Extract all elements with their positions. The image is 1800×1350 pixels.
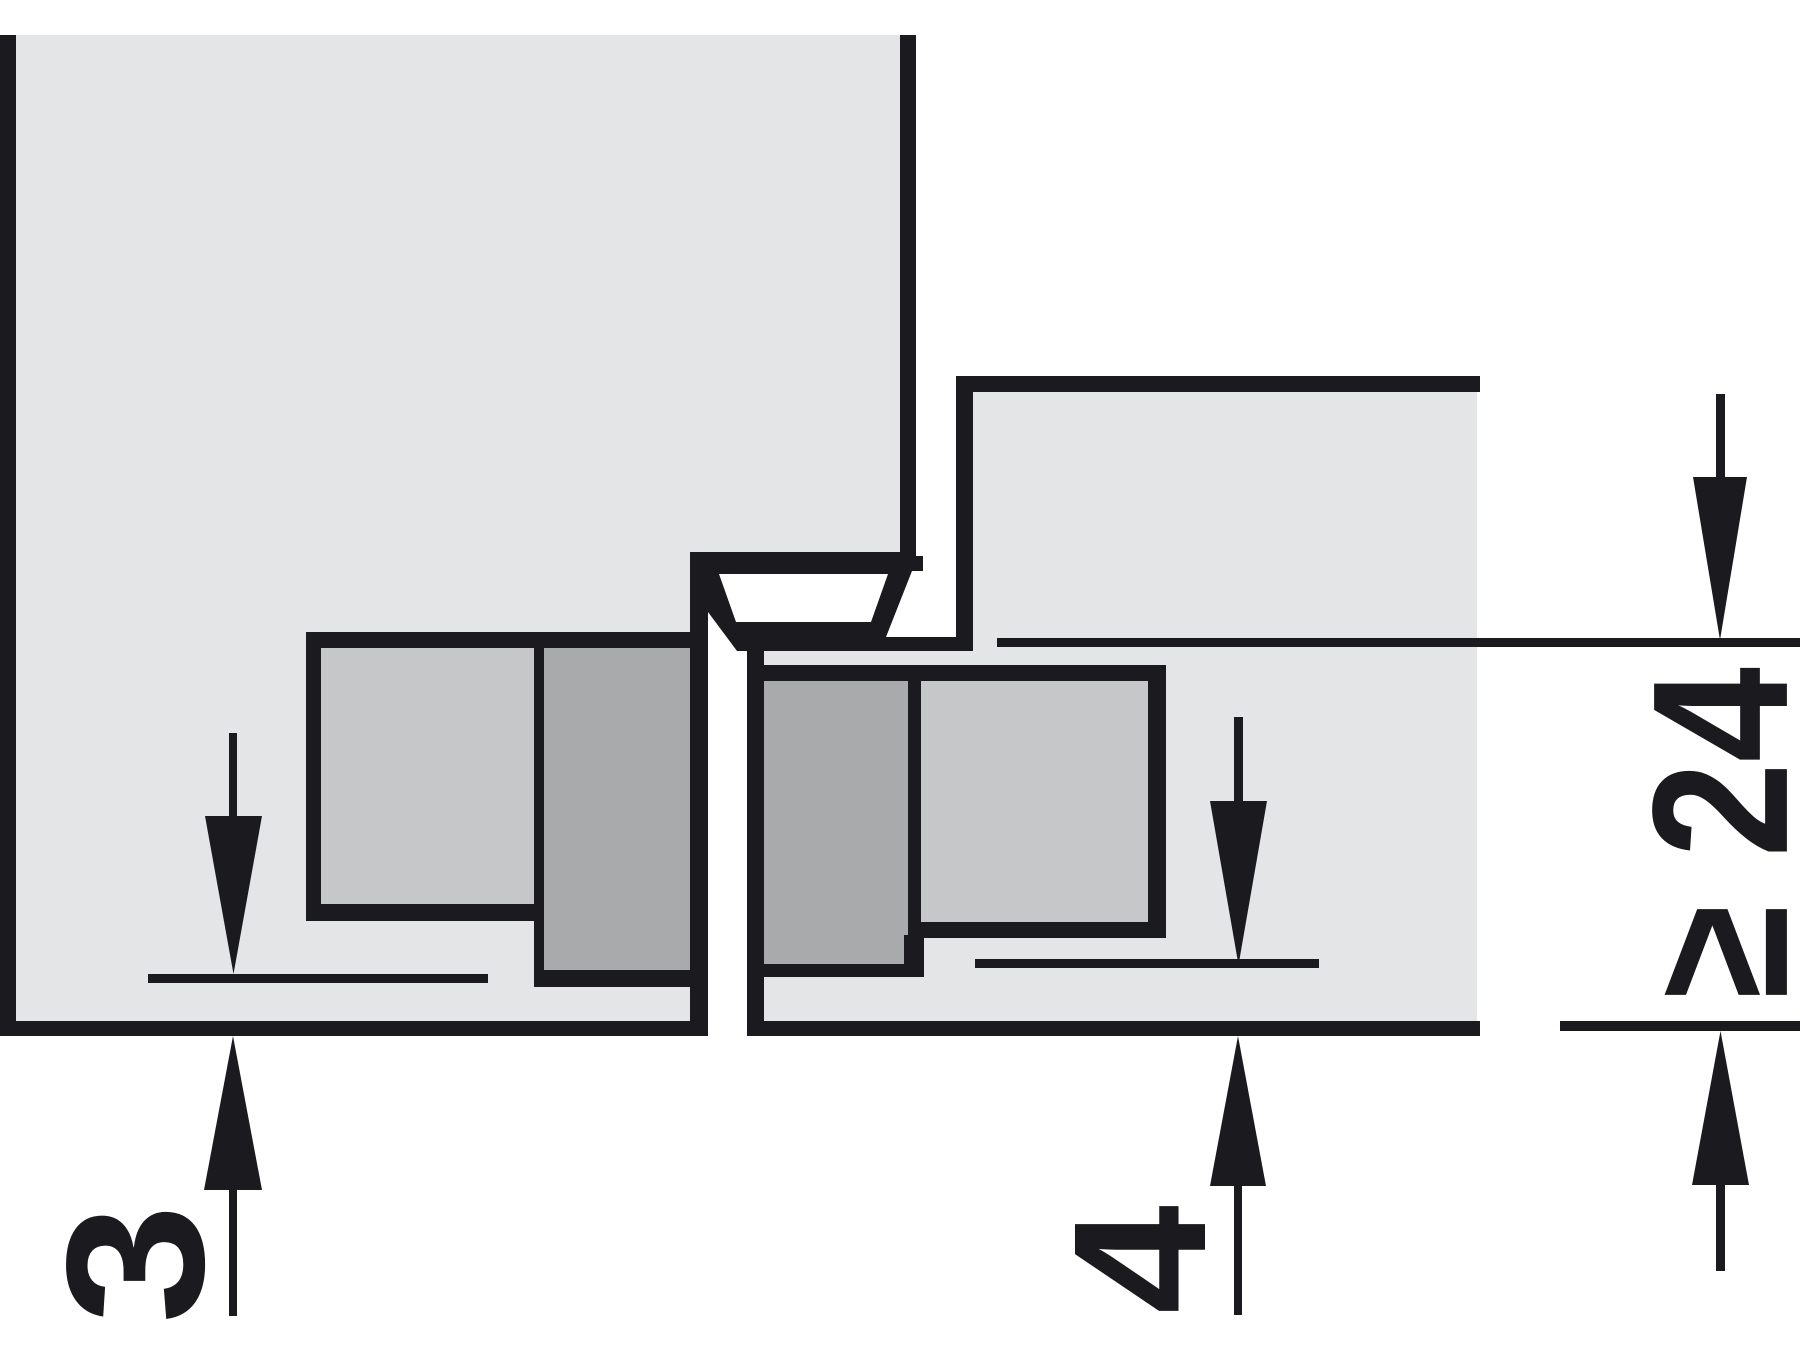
svg-text:3: 3	[25, 1204, 245, 1324]
svg-text:4: 4	[1034, 1205, 1245, 1314]
svg-text:≥ 24: ≥ 24	[1612, 667, 1800, 999]
